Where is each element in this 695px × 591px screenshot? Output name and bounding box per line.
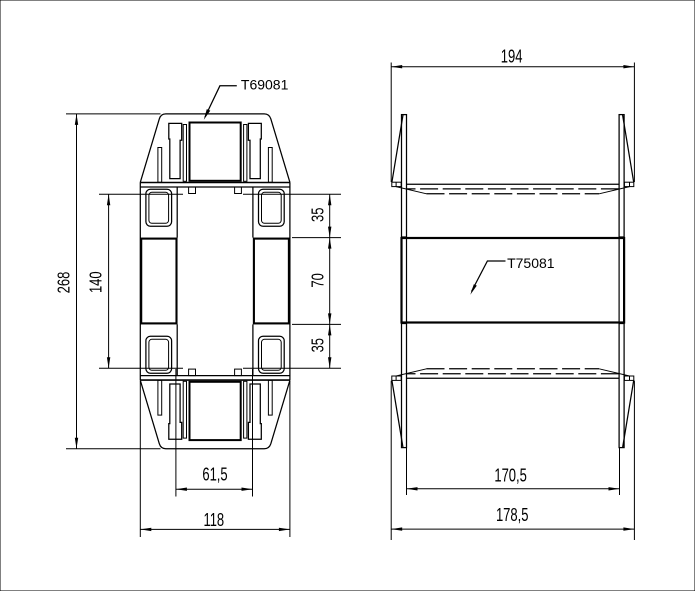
svg-text:140: 140 xyxy=(87,271,106,293)
svg-text:170,5: 170,5 xyxy=(494,465,527,486)
svg-text:268: 268 xyxy=(55,271,74,293)
svg-text:35: 35 xyxy=(309,207,328,222)
svg-text:T75081: T75081 xyxy=(507,255,555,271)
svg-text:T69081: T69081 xyxy=(241,77,289,93)
svg-text:61,5: 61,5 xyxy=(202,464,227,485)
svg-text:194: 194 xyxy=(501,46,523,67)
svg-text:70: 70 xyxy=(309,273,328,288)
svg-text:178,5: 178,5 xyxy=(496,505,529,526)
svg-text:35: 35 xyxy=(309,338,328,353)
svg-text:118: 118 xyxy=(203,510,224,531)
